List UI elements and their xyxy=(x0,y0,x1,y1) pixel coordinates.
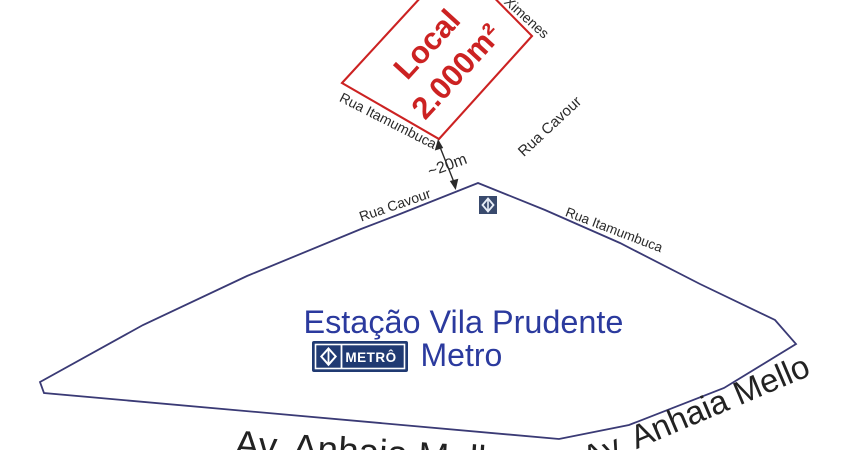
svg-text:Metro: Metro xyxy=(421,337,503,373)
svg-text:METRÔ: METRÔ xyxy=(345,350,396,365)
svg-text:Rua Cavour: Rua Cavour xyxy=(515,93,585,160)
svg-text:Estação Vila Prudente: Estação Vila Prudente xyxy=(304,304,624,340)
svg-text:Av. Anhaia Mello: Av. Anhaia Mello xyxy=(577,347,815,450)
svg-text:Rua Itamumbuca: Rua Itamumbuca xyxy=(563,204,665,255)
svg-text:Av. Anhaia Mello: Av. Anhaia Mello xyxy=(233,423,507,450)
svg-text:~20m: ~20m xyxy=(426,151,470,181)
svg-text:Ximenes: Ximenes xyxy=(501,0,552,41)
